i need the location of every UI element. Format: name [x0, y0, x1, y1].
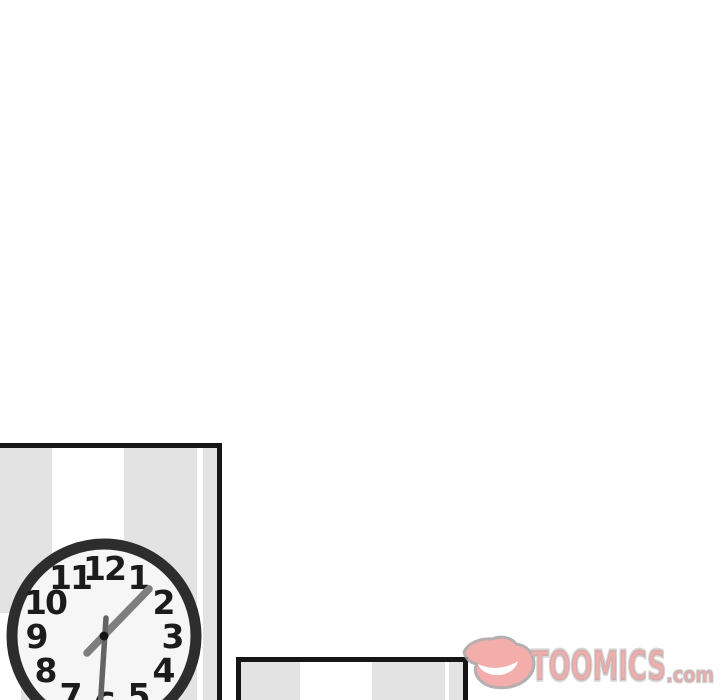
- clock-number-4: 4: [153, 651, 175, 690]
- clock-number-7: 7: [60, 676, 81, 700]
- clock-number-8: 8: [35, 651, 56, 690]
- clock-number-9: 9: [26, 617, 47, 656]
- clock-number-6: 6: [94, 685, 116, 700]
- clock-number-5: 5: [128, 676, 149, 700]
- toomics-suffix-outline: .com: [666, 663, 714, 687]
- comic-panel-2: [236, 657, 468, 700]
- clock-number-11: 11: [49, 558, 91, 597]
- toomics-watermark: TOOMICS TOOMICS TOOMICS .com .com: [460, 634, 718, 690]
- toomics-brand-outline: TOOMICS: [531, 642, 666, 690]
- clock-center-dot: [100, 632, 109, 641]
- wall-clock: 12 1 2 3 4 5 6 7 8 9 10 11: [0, 443, 240, 700]
- toomics-logo-icon: [464, 637, 534, 688]
- comic-page: 12 1 2 3 4 5 6 7 8 9 10 11 TOOMICS TOOMI…: [0, 0, 720, 700]
